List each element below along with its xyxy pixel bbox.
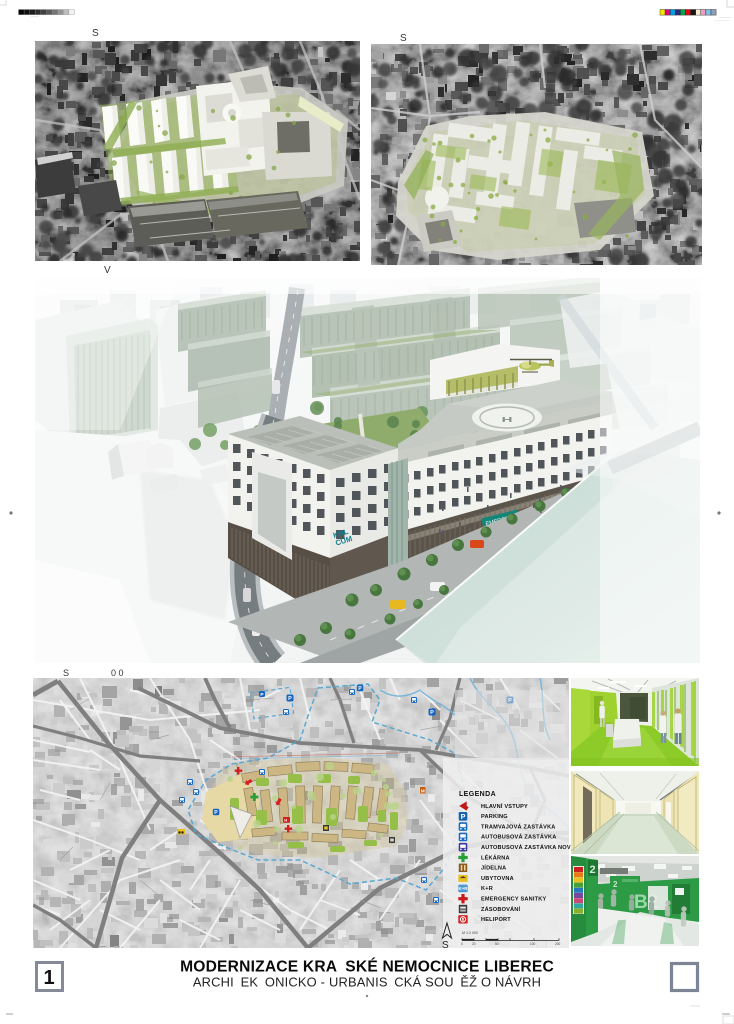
svg-text:MODERNIZACE KRA SKÉ NEMOCNICE: MODERNIZACE KRA SKÉ NEMOCNICE LIBEREC xyxy=(180,957,554,976)
svg-text:S: S xyxy=(442,940,449,951)
svg-text:K+R: K+R xyxy=(481,886,493,892)
svg-text:AUTOBUSOVÁ ZASTÁVKA: AUTOBUSOVÁ ZASTÁVKA xyxy=(481,834,557,841)
svg-text:50: 50 xyxy=(495,942,499,946)
svg-text:0: 0 xyxy=(461,942,463,946)
svg-text:V: V xyxy=(104,265,111,276)
svg-text:HELIPORT: HELIPORT xyxy=(481,917,511,923)
svg-text:EMERGENCY SANITKY: EMERGENCY SANITKY xyxy=(481,897,547,903)
svg-text:S: S xyxy=(400,33,407,44)
svg-text:K+R: K+R xyxy=(459,886,469,891)
svg-text:UBYTOVNA: UBYTOVNA xyxy=(481,876,514,882)
svg-text:ZÁSOBOVÁNÍ: ZÁSOBOVÁNÍ xyxy=(481,905,521,913)
svg-text:1: 1 xyxy=(43,967,54,989)
svg-text:PARKING: PARKING xyxy=(481,814,508,820)
svg-text:M: M xyxy=(421,788,425,794)
svg-text:AUTOBUSOVÁ ZASTÁVKA NOVÁ: AUTOBUSOVÁ ZASTÁVKA NOVÁ xyxy=(481,844,575,851)
svg-text:200: 200 xyxy=(555,942,561,946)
svg-text:20: 20 xyxy=(472,942,476,946)
svg-text:HLAVNÍ VSTUPY: HLAVNÍ VSTUPY xyxy=(481,802,528,810)
svg-text:M 1:2 000: M 1:2 000 xyxy=(462,931,478,935)
svg-text:JÍDELNA: JÍDELNA xyxy=(481,864,506,872)
svg-text:H: H xyxy=(284,818,287,823)
svg-text:S: S xyxy=(63,668,69,678)
svg-text:2: 2 xyxy=(613,880,618,889)
svg-text:P: P xyxy=(430,710,434,716)
svg-text:LEGENDA: LEGENDA xyxy=(459,791,496,798)
svg-text:LÉKÁRNA: LÉKÁRNA xyxy=(481,853,510,861)
svg-text:P: P xyxy=(260,692,263,697)
svg-text:H: H xyxy=(502,415,513,424)
svg-text:TRAMVAJOVÁ ZASTÁVKA: TRAMVAJOVÁ ZASTÁVKA xyxy=(481,823,556,830)
svg-text:S: S xyxy=(92,28,99,39)
svg-text:P: P xyxy=(358,686,362,692)
svg-text:0 0: 0 0 xyxy=(111,668,124,678)
svg-text:P: P xyxy=(461,812,466,821)
svg-text:ARCHI EK ONICKO - URBANIS CKÁ: ARCHI EK ONICKO - URBANIS CKÁ SOU ĚŽ O N… xyxy=(193,975,541,990)
svg-text:P: P xyxy=(288,696,292,702)
svg-text:100: 100 xyxy=(530,942,536,946)
svg-text:P: P xyxy=(214,810,218,816)
svg-text:2: 2 xyxy=(590,864,596,876)
